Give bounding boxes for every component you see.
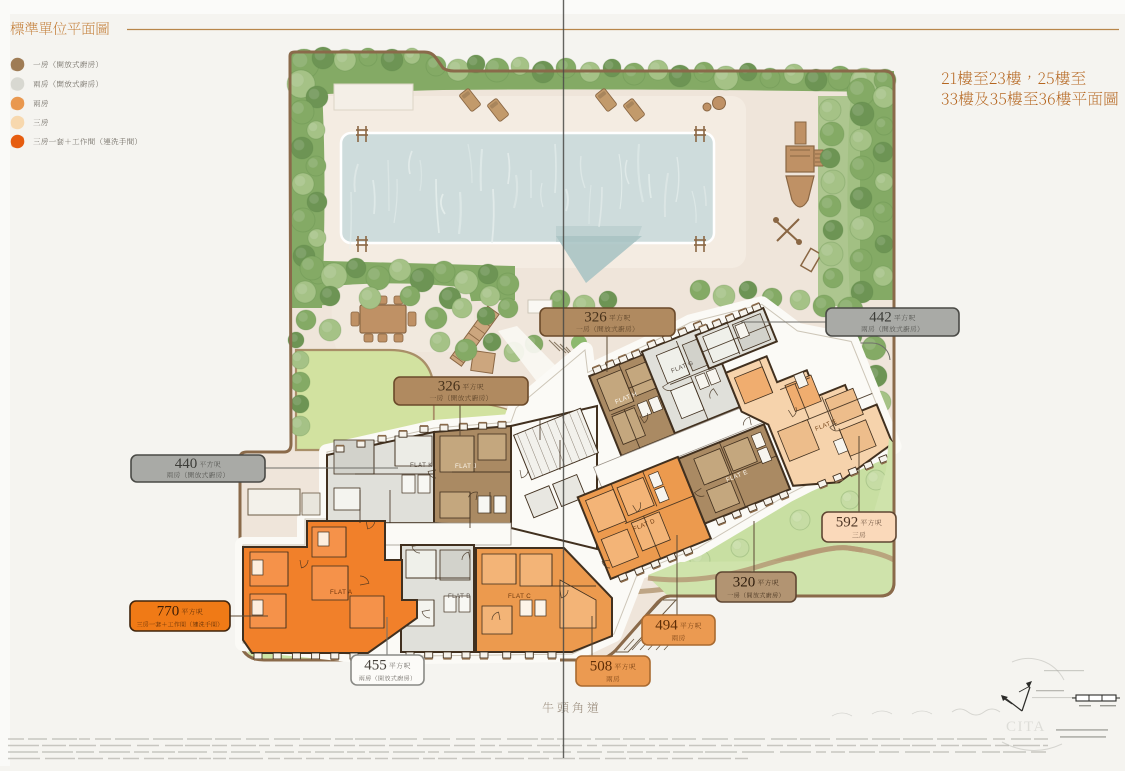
svg-text:FLAT K: FLAT K — [410, 462, 433, 469]
svg-text:FLAT J: FLAT J — [455, 463, 477, 470]
svg-text:326: 326 — [584, 309, 607, 325]
svg-text:508: 508 — [590, 658, 613, 674]
svg-text:770: 770 — [157, 603, 180, 619]
svg-text:440: 440 — [175, 456, 198, 472]
svg-text:592: 592 — [836, 514, 859, 530]
svg-text:326: 326 — [438, 378, 461, 394]
svg-text:455: 455 — [364, 657, 387, 673]
svg-text:494: 494 — [655, 617, 678, 633]
svg-text:320: 320 — [733, 574, 756, 590]
svg-text:FLAT A: FLAT A — [330, 589, 353, 596]
svg-text:FLAT C: FLAT C — [508, 593, 531, 600]
svg-text:442: 442 — [869, 309, 892, 325]
svg-text:CITA: CITA — [1006, 719, 1046, 735]
svg-text:FLAT B: FLAT B — [448, 593, 471, 600]
